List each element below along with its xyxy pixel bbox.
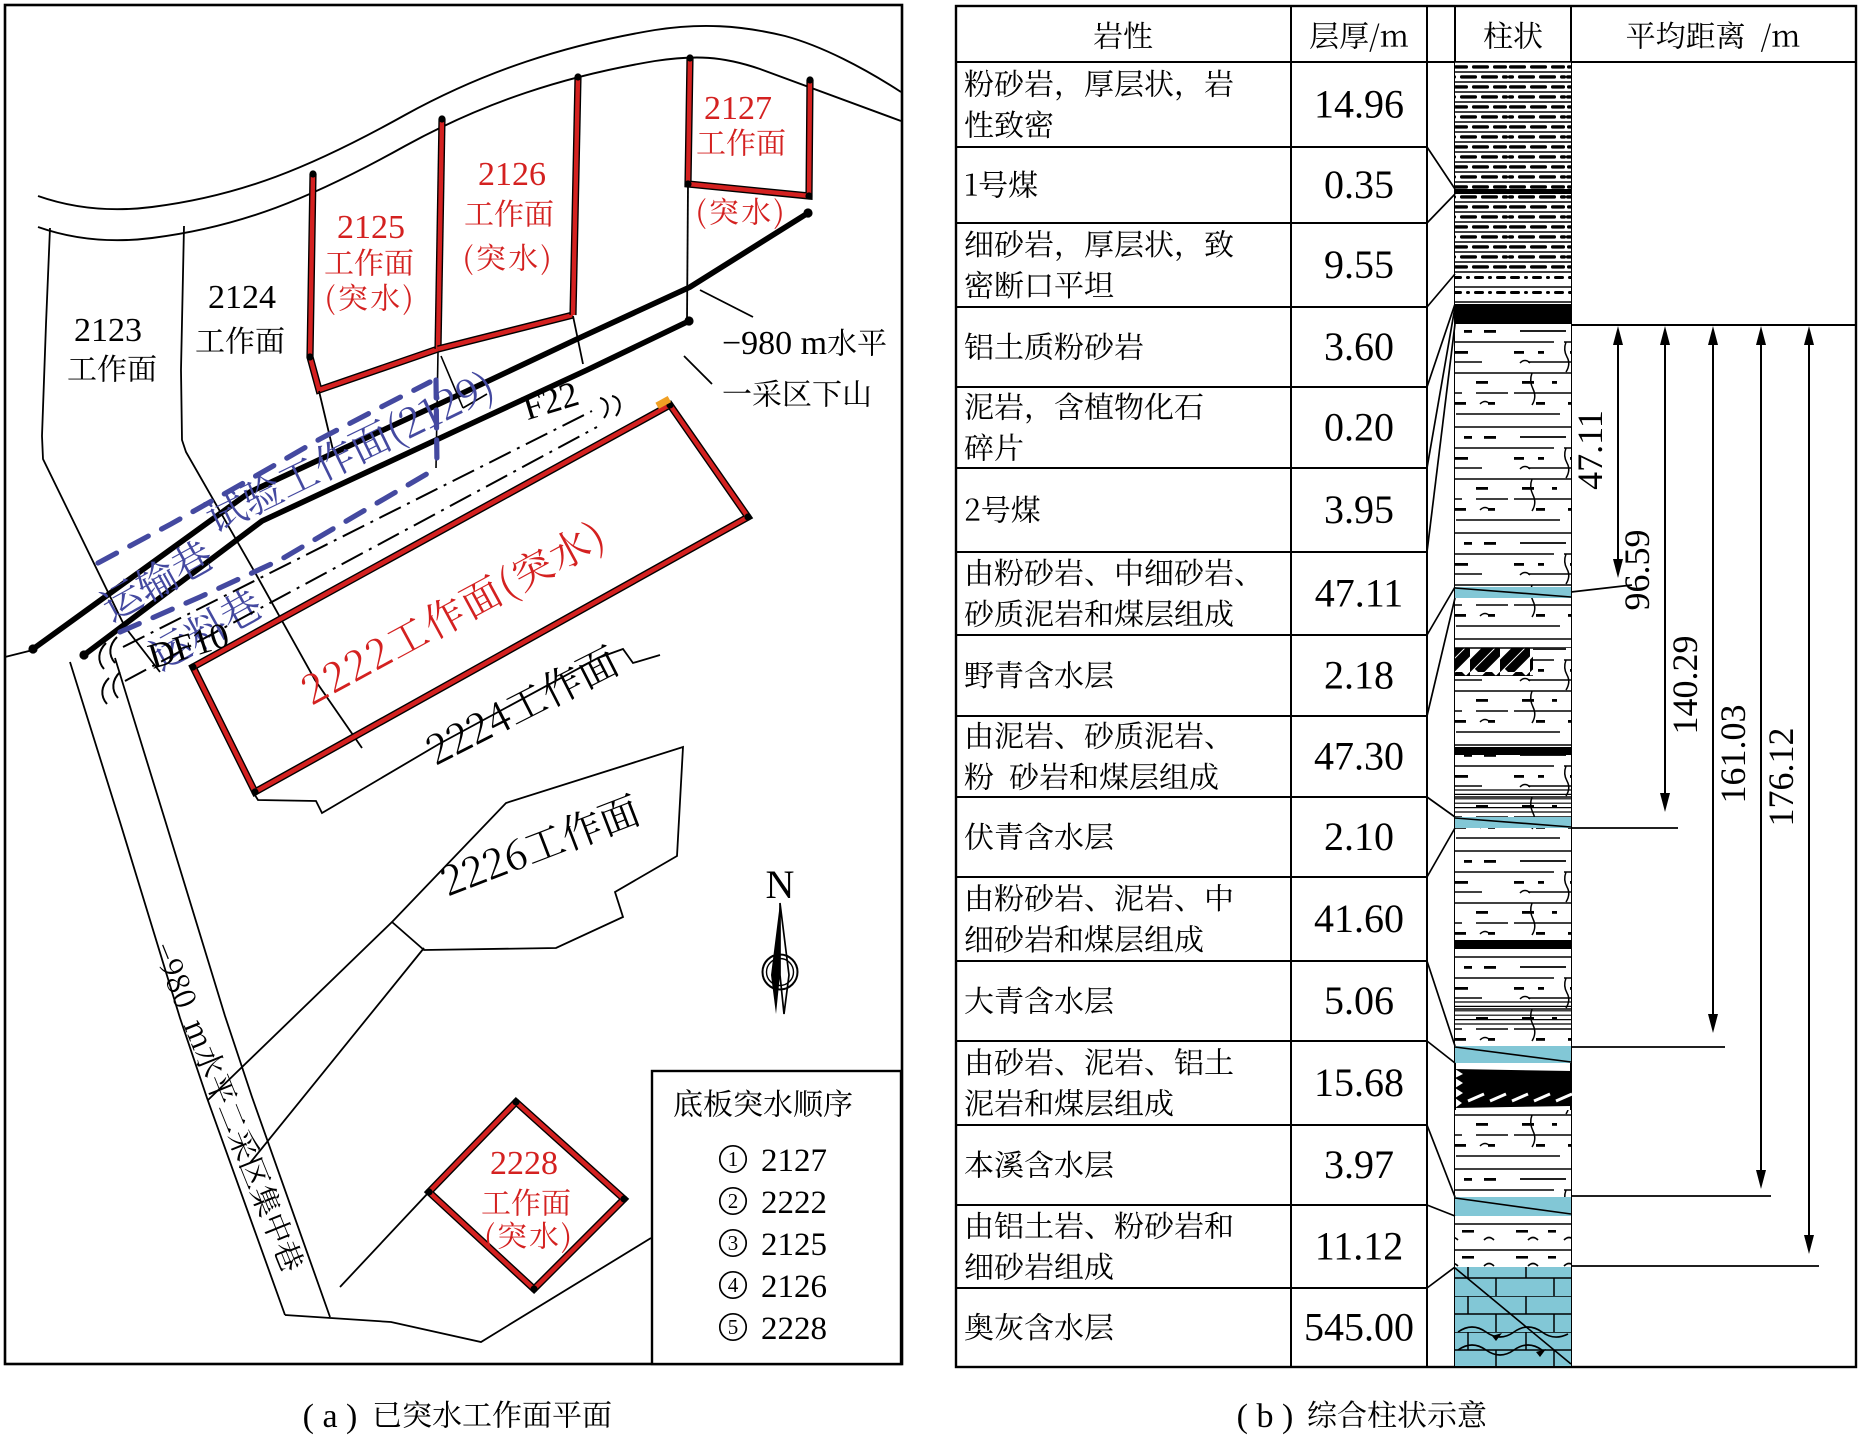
svg-text:161.03: 161.03 xyxy=(1713,705,1753,804)
svg-text:2123: 2123 xyxy=(74,312,142,349)
svg-text:2126: 2126 xyxy=(478,156,546,193)
svg-text:3.97: 3.97 xyxy=(1324,1142,1394,1187)
svg-text:14.96: 14.96 xyxy=(1314,82,1404,127)
svg-text:0.35: 0.35 xyxy=(1324,162,1394,207)
svg-text:( b ): ( b ) xyxy=(1237,1398,1294,1435)
svg-text:2125: 2125 xyxy=(337,209,405,246)
svg-text:2127: 2127 xyxy=(761,1143,827,1179)
svg-text:47.11: 47.11 xyxy=(1570,410,1610,490)
svg-text:−980 m: −980 m xyxy=(722,325,827,362)
svg-text:140.29: 140.29 xyxy=(1665,636,1705,735)
svg-text:3.60: 3.60 xyxy=(1324,324,1394,369)
svg-text:3: 3 xyxy=(728,1231,739,1255)
svg-text:5: 5 xyxy=(728,1315,739,1339)
svg-text:2.18: 2.18 xyxy=(1324,653,1394,698)
svg-text:2124: 2124 xyxy=(208,279,276,316)
svg-text:47.30: 47.30 xyxy=(1314,734,1404,779)
svg-text:96.59: 96.59 xyxy=(1617,530,1657,611)
svg-text:2228: 2228 xyxy=(490,1145,558,1182)
svg-text:41.60: 41.60 xyxy=(1314,896,1404,941)
svg-text:3.95: 3.95 xyxy=(1324,487,1394,532)
svg-text:2127: 2127 xyxy=(704,90,772,127)
svg-text:( a ): ( a ) xyxy=(303,1398,358,1435)
svg-text:2.10: 2.10 xyxy=(1324,814,1394,859)
svg-text:5.06: 5.06 xyxy=(1324,978,1394,1023)
svg-text:N: N xyxy=(766,862,795,907)
svg-text:176.12: 176.12 xyxy=(1761,728,1801,827)
svg-text:2126: 2126 xyxy=(761,1269,827,1305)
svg-text:2228: 2228 xyxy=(761,1311,827,1347)
svg-text:1: 1 xyxy=(728,1147,739,1171)
svg-text:15.68: 15.68 xyxy=(1314,1060,1404,1105)
svg-text:0.20: 0.20 xyxy=(1324,405,1394,450)
svg-text:2222: 2222 xyxy=(761,1185,827,1221)
svg-text:9.55: 9.55 xyxy=(1324,242,1394,287)
svg-text:11.12: 11.12 xyxy=(1315,1224,1404,1269)
svg-text:2: 2 xyxy=(728,1189,739,1213)
svg-text:47.11: 47.11 xyxy=(1315,571,1404,616)
svg-text:545.00: 545.00 xyxy=(1304,1305,1414,1350)
svg-text:4: 4 xyxy=(728,1273,739,1297)
svg-text:2125: 2125 xyxy=(761,1227,827,1263)
